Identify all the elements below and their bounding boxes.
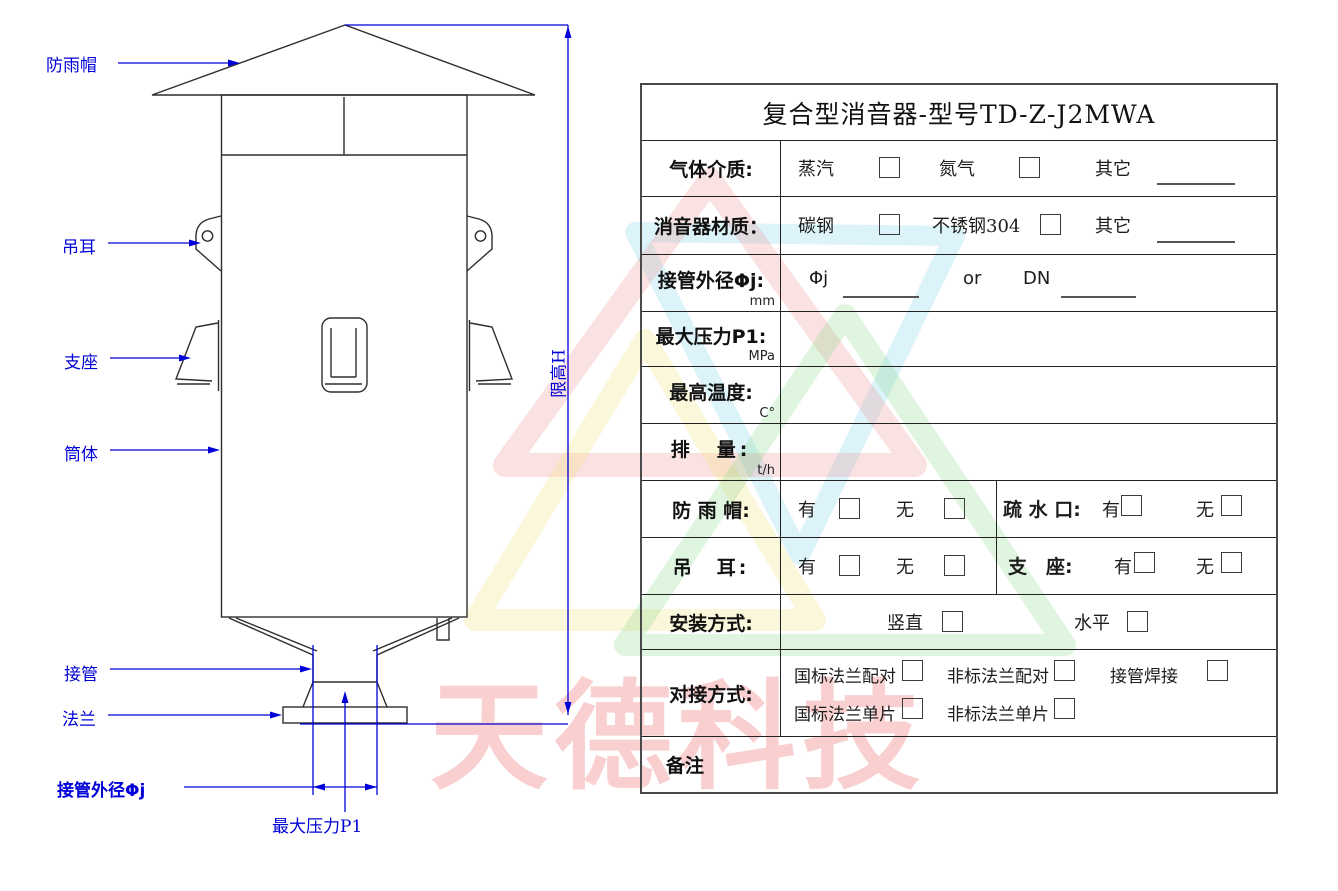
nitrogen-option: 氮气 — [939, 155, 975, 181]
support-yes-checkbox[interactable] — [1134, 552, 1155, 573]
dn-prefix: DN — [1023, 268, 1050, 289]
row-gas-medium: 气体介质: 蒸汽 氮气 其它 — [642, 140, 1276, 196]
support-left — [176, 323, 218, 381]
nonstd-flange-single-checkbox[interactable] — [1054, 698, 1075, 719]
lifting-ear-label: 吊耳 — [62, 233, 96, 258]
ear-row-label: 吊 耳: — [673, 553, 750, 580]
support-yes-label: 有 — [1114, 553, 1132, 579]
support-label: 支座 — [64, 348, 98, 373]
support-no-label: 无 — [1196, 553, 1214, 579]
carbon-steel-checkbox[interactable] — [879, 214, 900, 235]
ear-no-checkbox[interactable] — [944, 555, 965, 576]
pipe-shape — [313, 655, 377, 682]
row-connection: 对接方式: 国标法兰配对 非标法兰配对 接管焊接 国标法兰单片 非标法兰单片 — [642, 649, 1276, 736]
table-title-row: 复合型消音器-型号TD-Z-J2MWA — [642, 85, 1276, 140]
support-row-label: 支 座: — [1008, 552, 1073, 579]
dn-blank[interactable] — [1061, 296, 1136, 298]
shell-body-shape — [222, 95, 468, 617]
remark-label: 备注 — [666, 751, 704, 778]
row-install: 安装方式: 竖直 水平 — [642, 594, 1276, 649]
row-divider — [996, 538, 997, 594]
max-pressure-unit: MPa — [749, 349, 775, 364]
gas-medium-label: 气体介质: — [669, 155, 753, 182]
row-material: 消音器材质： 碳钢 不锈钢304 其它 — [642, 196, 1276, 254]
stainless-304-checkbox[interactable] — [1040, 214, 1061, 235]
gb-flange-pair-label: 国标法兰配对 — [794, 662, 896, 687]
support-no-checkbox[interactable] — [1221, 552, 1242, 573]
gb-flange-single-checkbox[interactable] — [902, 698, 923, 719]
displacement-unit: t/h — [757, 463, 775, 478]
stainless-option: 不锈钢304 — [932, 212, 1020, 238]
raincap-row-label: 防 雨 帽: — [672, 496, 750, 523]
cone-left — [229, 618, 317, 655]
material-other-blank[interactable] — [1157, 241, 1235, 243]
raincap-yes-label: 有 — [798, 496, 816, 522]
gb-flange-single-label: 国标法兰单片 — [794, 700, 896, 725]
connection-row-label: 对接方式: — [669, 680, 753, 707]
rain-cap-label: 防雨帽 — [46, 51, 97, 76]
gas-other-blank[interactable] — [1157, 183, 1235, 185]
material-label: 消音器材质： — [654, 212, 768, 239]
spec-table: 复合型消音器-型号TD-Z-J2MWA 气体介质: 蒸汽 氮气 其它 消音器材质… — [640, 83, 1278, 794]
support-right — [470, 323, 512, 381]
row-max-pressure: 最大压力P1: MPa — [642, 311, 1276, 366]
phi-prefix: Φj — [809, 268, 828, 289]
pipe-od-row-label: 接管外径Φj: — [658, 266, 764, 293]
pipe-od-label: 接管外径Φj — [57, 776, 145, 801]
drain-yes-label: 有 — [1102, 496, 1120, 522]
flange-label: 法兰 — [62, 705, 96, 730]
gb-flange-pair-checkbox[interactable] — [902, 660, 923, 681]
nonstd-flange-pair-label: 非标法兰配对 — [947, 662, 1049, 687]
drain-no-checkbox[interactable] — [1221, 495, 1242, 516]
cone-right — [373, 618, 459, 655]
pipe-label: 接管 — [64, 660, 98, 685]
material-other-label: 其它 — [1095, 212, 1131, 238]
row-pipe-od: 接管外径Φj: mm Φj or DN — [642, 254, 1276, 311]
phi-blank[interactable] — [843, 296, 919, 298]
raincap-no-label: 无 — [896, 496, 914, 522]
row-max-temp: 最高温度: C° — [642, 366, 1276, 423]
gas-other-label: 其它 — [1095, 155, 1131, 181]
lifting-ear-left — [196, 216, 221, 271]
steam-checkbox[interactable] — [879, 157, 900, 178]
annotation-arrowheads — [179, 26, 572, 791]
max-pressure-row-label: 最大压力P1: — [656, 322, 767, 349]
pipe-od-unit: mm — [750, 294, 775, 309]
raincap-no-checkbox[interactable] — [944, 498, 965, 519]
table-title: 复合型消音器-型号TD-Z-J2MWA — [763, 95, 1156, 131]
ear-yes-label: 有 — [798, 553, 816, 579]
pipe-weld-checkbox[interactable] — [1207, 660, 1228, 681]
nitrogen-checkbox[interactable] — [1019, 157, 1040, 178]
page: 天德科技 — [0, 0, 1338, 891]
displacement-row-label: 排 量: — [671, 435, 752, 462]
lifting-ear-right — [467, 216, 492, 271]
steam-option: 蒸汽 — [798, 155, 834, 181]
nonstd-flange-single-label: 非标法兰单片 — [947, 700, 1049, 725]
drain-label: 疏 水 口: — [1003, 495, 1081, 522]
carbon-steel-option: 碳钢 — [798, 212, 834, 238]
shell-label: 筒体 — [64, 440, 98, 465]
pipe-weld-label: 接管焊接 — [1110, 662, 1178, 687]
height-limit-label: 限高H — [545, 334, 570, 414]
nonstd-flange-pair-checkbox[interactable] — [1054, 660, 1075, 681]
silencer-outline — [152, 25, 535, 723]
row-raincap-drain: 防 雨 帽: 有 无 疏 水 口: 有 无 — [642, 480, 1276, 537]
vertical-checkbox[interactable] — [942, 611, 963, 632]
row-displacement: 排 量: t/h — [642, 423, 1276, 480]
ear-no-label: 无 — [896, 553, 914, 579]
drain-no-label: 无 — [1196, 496, 1214, 522]
vertical-option: 竖直 — [887, 609, 923, 635]
or-text: or — [963, 268, 981, 289]
annotation-lines — [108, 25, 568, 812]
max-temp-row-label: 最高温度: — [669, 378, 753, 405]
raincap-yes-checkbox[interactable] — [839, 498, 860, 519]
row-divider — [996, 481, 997, 537]
drain-yes-checkbox[interactable] — [1121, 495, 1142, 516]
horizontal-checkbox[interactable] — [1127, 611, 1148, 632]
rain-cap-shape — [152, 25, 535, 95]
horizontal-option: 水平 — [1074, 609, 1110, 635]
max-pressure-label: 最大压力P1 — [272, 812, 362, 837]
max-temp-unit: C° — [759, 406, 775, 421]
install-row-label: 安装方式: — [669, 609, 753, 636]
row-remark: 备注 — [642, 736, 1276, 792]
center-bracket — [322, 318, 367, 392]
row-ear-support: 吊 耳: 有 无 支 座: 有 无 — [642, 537, 1276, 594]
ear-yes-checkbox[interactable] — [839, 555, 860, 576]
